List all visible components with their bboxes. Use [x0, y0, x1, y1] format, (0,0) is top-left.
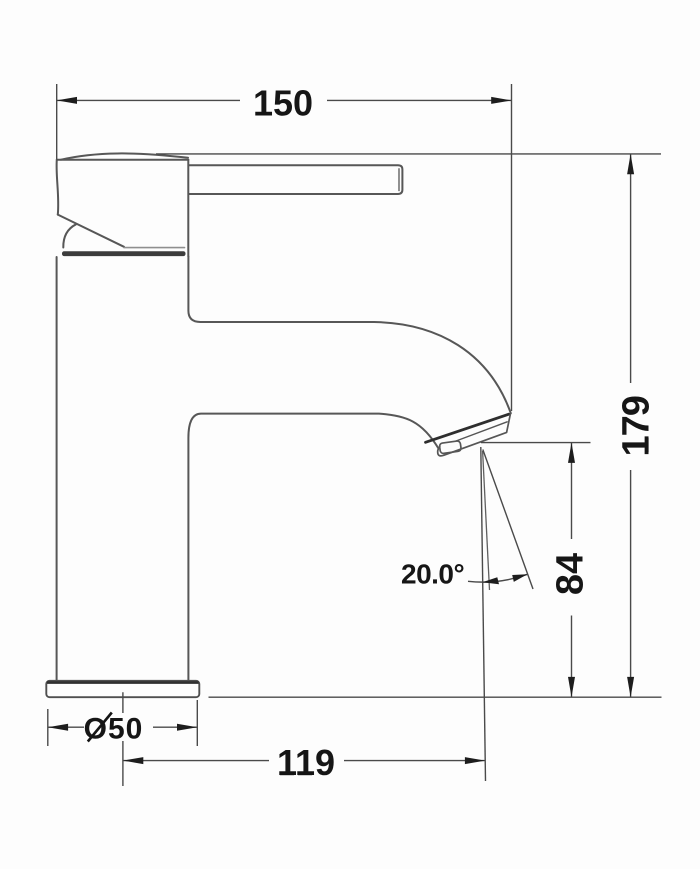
svg-text:150: 150: [253, 83, 313, 124]
svg-text:O50: O50: [84, 713, 144, 746]
svg-text:179: 179: [616, 396, 658, 456]
svg-text:20.0°: 20.0°: [401, 559, 464, 590]
svg-text:119: 119: [277, 742, 335, 783]
svg-text:84: 84: [549, 553, 591, 595]
